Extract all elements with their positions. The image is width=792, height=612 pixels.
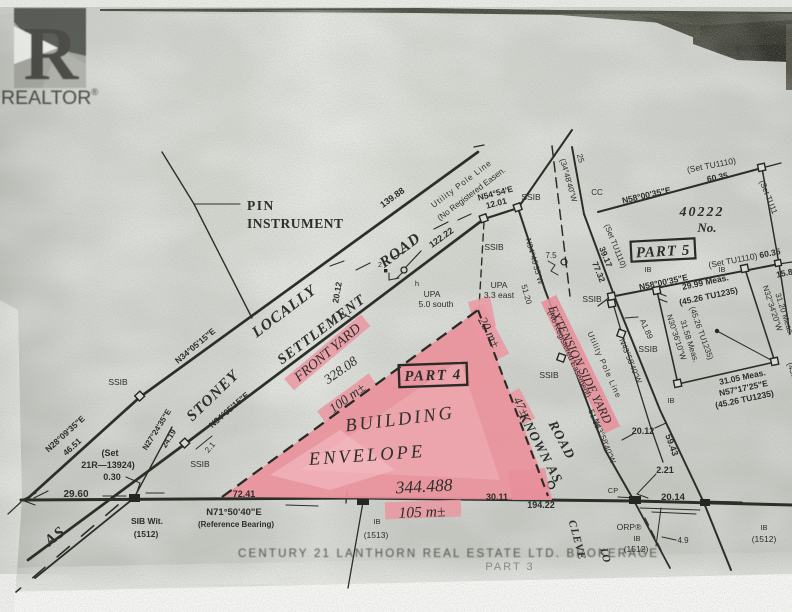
svg-text:PIN: PIN: [247, 198, 275, 213]
svg-text:3.3 east: 3.3 east: [484, 290, 515, 300]
svg-text:20.14: 20.14: [661, 492, 685, 503]
svg-text:105 m±: 105 m±: [398, 503, 445, 522]
svg-text:20.12: 20.12: [632, 426, 655, 436]
svg-text:(1513): (1513): [364, 530, 389, 540]
svg-text:30.11: 30.11: [486, 492, 508, 502]
svg-text:IB: IB: [373, 517, 380, 526]
svg-text:INSTRUMENT: INSTRUMENT: [247, 216, 344, 231]
svg-text:REALTOR®: REALTOR®: [1, 87, 98, 109]
svg-text:40222: 40222: [679, 205, 725, 220]
svg-text:(1512): (1512): [134, 529, 159, 539]
svg-text:SSIB: SSIB: [638, 344, 658, 354]
svg-text:21R—13924): 21R—13924): [81, 460, 135, 470]
svg-text:PART 4: PART 4: [404, 367, 462, 385]
svg-text:CENTURY 21 LANTHORN REAL ESTAT: CENTURY 21 LANTHORN REAL ESTATE LTD. BRO…: [238, 548, 659, 560]
svg-text:(Reference Bearing): (Reference Bearing): [198, 520, 274, 529]
svg-text:N71°50'40"E: N71°50'40"E: [206, 507, 261, 518]
svg-text:IB: IB: [667, 396, 674, 405]
svg-text:IB: IB: [718, 265, 725, 274]
svg-text:0.30: 0.30: [103, 472, 121, 482]
svg-text:IB: IB: [760, 523, 767, 532]
svg-text:(Set: (Set: [101, 448, 118, 458]
svg-text:CP: CP: [608, 486, 618, 495]
svg-text:72.41: 72.41: [233, 489, 256, 499]
svg-text:SSIB: SSIB: [484, 242, 504, 252]
svg-text:h: h: [415, 279, 419, 288]
svg-text:UPA: UPA: [424, 289, 441, 299]
svg-text:344.488: 344.488: [394, 474, 453, 497]
svg-text:(1512): (1512): [752, 534, 777, 544]
svg-text:7.5: 7.5: [545, 251, 557, 260]
svg-text:2.21: 2.21: [656, 465, 674, 475]
svg-text:PART 3: PART 3: [485, 561, 534, 573]
svg-text:4.9: 4.9: [677, 536, 689, 545]
svg-text:R: R: [24, 12, 80, 96]
svg-text:SIB Wit.: SIB Wit.: [131, 516, 163, 526]
svg-text:29.60: 29.60: [63, 489, 88, 500]
svg-text:ORP®: ORP®: [617, 522, 642, 532]
svg-text:SSIB: SSIB: [582, 294, 602, 304]
svg-text:IB: IB: [633, 534, 640, 543]
svg-text:2: 2: [378, 262, 382, 269]
svg-text:SSIB: SSIB: [539, 370, 559, 380]
svg-text:SSIB: SSIB: [190, 459, 210, 469]
svg-text:No.: No.: [696, 220, 716, 235]
svg-text:CC: CC: [591, 188, 603, 197]
svg-text:5.0 south: 5.0 south: [419, 299, 454, 309]
svg-text:IB: IB: [644, 265, 651, 274]
svg-text:UPA: UPA: [491, 280, 508, 290]
svg-text:SSIB: SSIB: [108, 377, 128, 387]
svg-text:194.22: 194.22: [527, 500, 555, 510]
svg-text:SSIB: SSIB: [521, 192, 541, 202]
svg-text:PART 5: PART 5: [635, 243, 690, 262]
